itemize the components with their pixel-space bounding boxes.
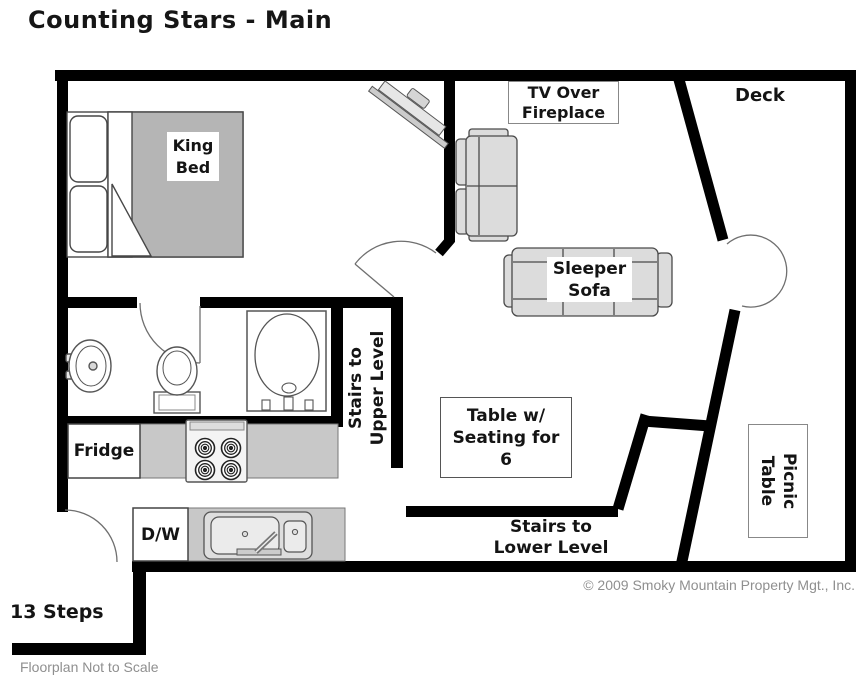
stairs-upper-label: Stairs to Upper Level	[345, 323, 389, 453]
stove	[186, 420, 247, 482]
loveseat	[456, 129, 517, 241]
wall-deck-upper	[678, 76, 723, 240]
toilet	[154, 347, 200, 413]
bathtub	[247, 311, 326, 411]
tv-fireplace-label: TV Over Fireplace	[508, 81, 619, 124]
bedroom-door-leaf	[355, 264, 394, 297]
fridge-label: Fridge	[70, 426, 138, 476]
wall-bedroom-divider	[444, 70, 455, 242]
wall-bath-top-right	[200, 297, 403, 308]
scale-note: Floorplan Not to Scale	[20, 659, 159, 675]
wall-entry-bottom	[12, 643, 146, 655]
bed-pillow	[70, 116, 107, 182]
king-bed-label: King Bed	[167, 132, 219, 181]
steps-label: 13 Steps	[10, 601, 104, 623]
wall-stairs-connector	[643, 421, 710, 426]
bed-pillow	[70, 186, 107, 252]
wall-stairs-angled	[618, 415, 646, 509]
wall-stairs-corridor	[391, 297, 403, 468]
wall-divider-cap	[439, 239, 451, 253]
bathroom-sink	[66, 340, 111, 392]
dining-table-label: Table w/ Seating for 6	[440, 397, 572, 478]
copyright-note: © 2009 Smoky Mountain Property Mgt., Inc…	[540, 577, 855, 593]
sleeper-sofa-label: Sleeper Sofa	[547, 257, 632, 302]
entry-door-arc	[65, 510, 117, 562]
dishwasher-label: D/W	[135, 510, 186, 559]
floorplan-page: Counting Stars - Main	[0, 0, 857, 683]
wall-stairs-lower	[406, 506, 618, 517]
wall-top	[55, 70, 856, 81]
picnic-table-label: Picnic Table	[756, 431, 800, 531]
wall-bottom	[132, 561, 856, 572]
stairs-lower-label: Stairs to Lower Level	[461, 517, 641, 561]
deck-door-arc	[727, 235, 787, 307]
wall-entry-vertical	[133, 561, 146, 655]
wall-right	[845, 70, 856, 572]
wall-bath-right	[331, 308, 343, 427]
wall-deck-lower	[681, 310, 735, 566]
wall-bath-top-left	[57, 297, 137, 308]
kitchen-sink	[204, 512, 312, 559]
bedroom-door-arc	[355, 241, 436, 264]
deck-label: Deck	[735, 85, 785, 106]
